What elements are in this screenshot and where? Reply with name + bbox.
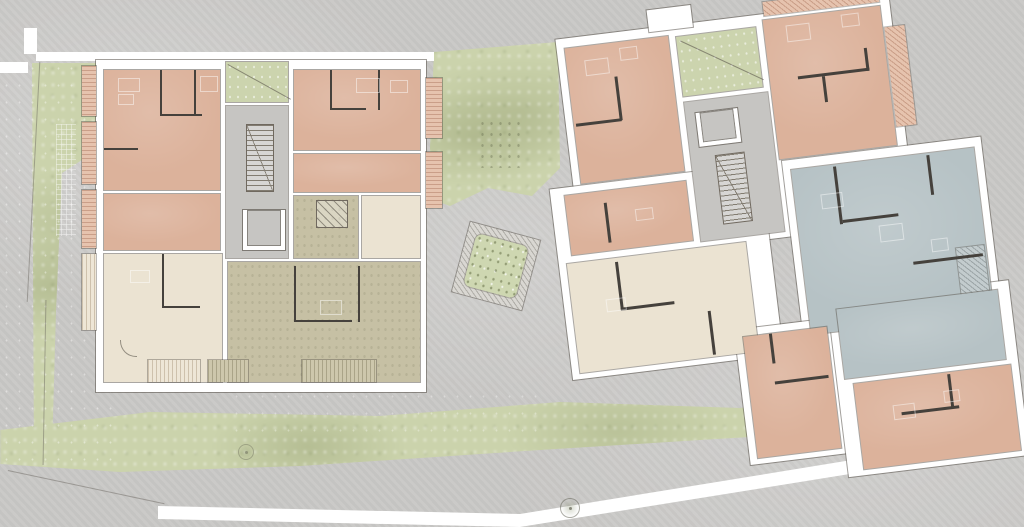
- apartment-w-e: [294, 154, 420, 192]
- furniture: [841, 13, 860, 28]
- furniture: [118, 94, 134, 105]
- shrub-dots: [478, 118, 520, 168]
- room-hall-e: [362, 196, 420, 258]
- terrace-south-1: [148, 360, 200, 382]
- furniture: [879, 223, 905, 243]
- furniture: [619, 46, 638, 61]
- sidewalk-west-bit: [0, 62, 28, 73]
- stair-icon-west: [246, 124, 274, 192]
- apartment-e-sw: [567, 242, 759, 373]
- tree-icon: [238, 444, 254, 460]
- balcony-west-2: [82, 122, 96, 184]
- planter-planting: [463, 233, 529, 299]
- balcony-west-4: [82, 254, 96, 330]
- partition: [358, 266, 360, 322]
- furniture: [200, 76, 218, 92]
- furniture: [390, 80, 408, 93]
- partition: [294, 266, 296, 322]
- partition: [104, 148, 138, 150]
- terrace-south-2: [208, 360, 248, 382]
- winder-stair-icon: [316, 200, 348, 228]
- partition: [162, 306, 200, 308]
- furniture: [893, 403, 917, 421]
- furniture: [130, 270, 150, 283]
- partition: [160, 70, 162, 116]
- apartment-e-s: [743, 327, 841, 458]
- site-plan: [0, 0, 1024, 527]
- partition: [162, 254, 164, 308]
- furniture: [785, 23, 811, 43]
- tree-icon: [560, 498, 580, 518]
- furniture: [820, 192, 844, 210]
- balcony-east-2: [426, 152, 442, 208]
- furniture: [118, 78, 140, 92]
- elevator-icon-west: [243, 210, 285, 250]
- furniture: [943, 389, 960, 403]
- furniture: [635, 207, 654, 221]
- furniture: [931, 237, 949, 252]
- building-east: [552, 0, 1024, 504]
- balcony-west-3: [82, 190, 96, 248]
- furniture: [584, 57, 610, 76]
- entry-garden-east: [676, 27, 763, 96]
- furniture: [320, 300, 342, 315]
- apartment-e-ne: [763, 6, 897, 159]
- partition: [330, 70, 332, 110]
- sidewalk-top-stub: [24, 28, 37, 54]
- paving-grid: [56, 124, 76, 236]
- balcony-west-1: [82, 66, 96, 116]
- partition: [330, 108, 366, 110]
- apartment-w-w: [104, 194, 220, 250]
- terrace-south-3: [302, 360, 376, 382]
- furniture: [605, 297, 626, 312]
- elevator-icon-east: [695, 108, 741, 147]
- partition: [194, 70, 196, 116]
- furniture: [356, 78, 380, 93]
- partition: [294, 320, 352, 322]
- balcony-east-1: [426, 78, 442, 138]
